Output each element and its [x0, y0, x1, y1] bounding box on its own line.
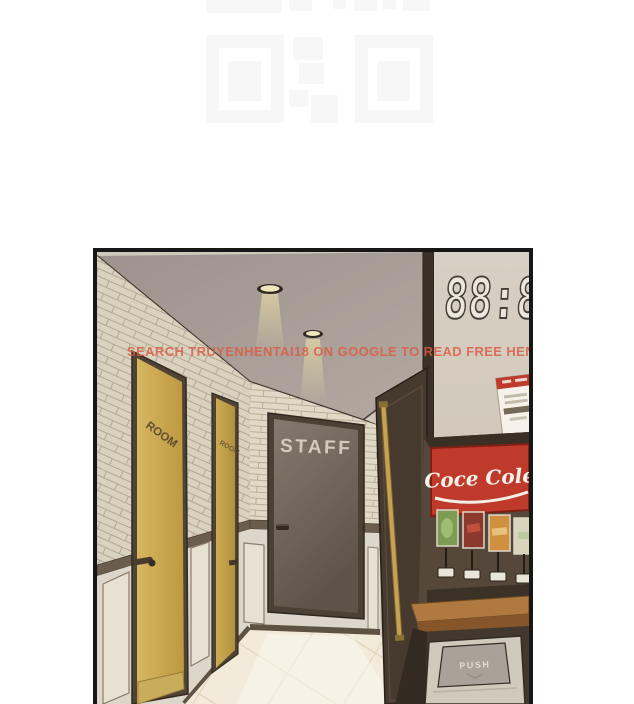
qr-block	[377, 61, 410, 101]
door-handle	[276, 524, 289, 530]
site-watermark-text: SEARCH TRUYENHENTAI18 ON GOOGLE TO READ …	[127, 344, 533, 359]
comic-panel: SEARCH TRUYENHENTAI18 ON GOOGLE TO READ …	[93, 248, 533, 704]
staff-door: STAFF	[268, 413, 364, 619]
qr-block	[206, 0, 282, 13]
wainscot-panel	[368, 547, 378, 630]
digital-clock: 88:8	[442, 267, 529, 331]
qr-block	[403, 0, 430, 11]
hallway-scene: ROOM ROOM STAFF	[97, 252, 529, 704]
qr-block	[311, 95, 338, 123]
staff-door-label: STAFF	[280, 436, 353, 460]
qr-block	[228, 61, 261, 101]
qr-block	[383, 0, 396, 9]
qr-block	[289, 0, 312, 11]
wainscot-panel	[244, 543, 264, 624]
cola-sign: Coce Cole	[424, 444, 529, 516]
qr-block	[354, 0, 377, 11]
qr-block	[289, 90, 308, 107]
room-door-1: ROOM	[132, 351, 188, 704]
wainscot-panel	[191, 542, 209, 666]
clock-display: 88:8	[442, 267, 529, 331]
qr-block	[299, 63, 324, 84]
wainscot-panel	[103, 572, 129, 704]
trash-bin: PUSH	[425, 636, 525, 704]
qr-pattern	[0, 0, 634, 140]
qr-block	[293, 37, 323, 60]
push-label: PUSH	[459, 659, 490, 671]
qr-block	[333, 0, 346, 9]
room-door-2: ROOM	[212, 393, 241, 673]
